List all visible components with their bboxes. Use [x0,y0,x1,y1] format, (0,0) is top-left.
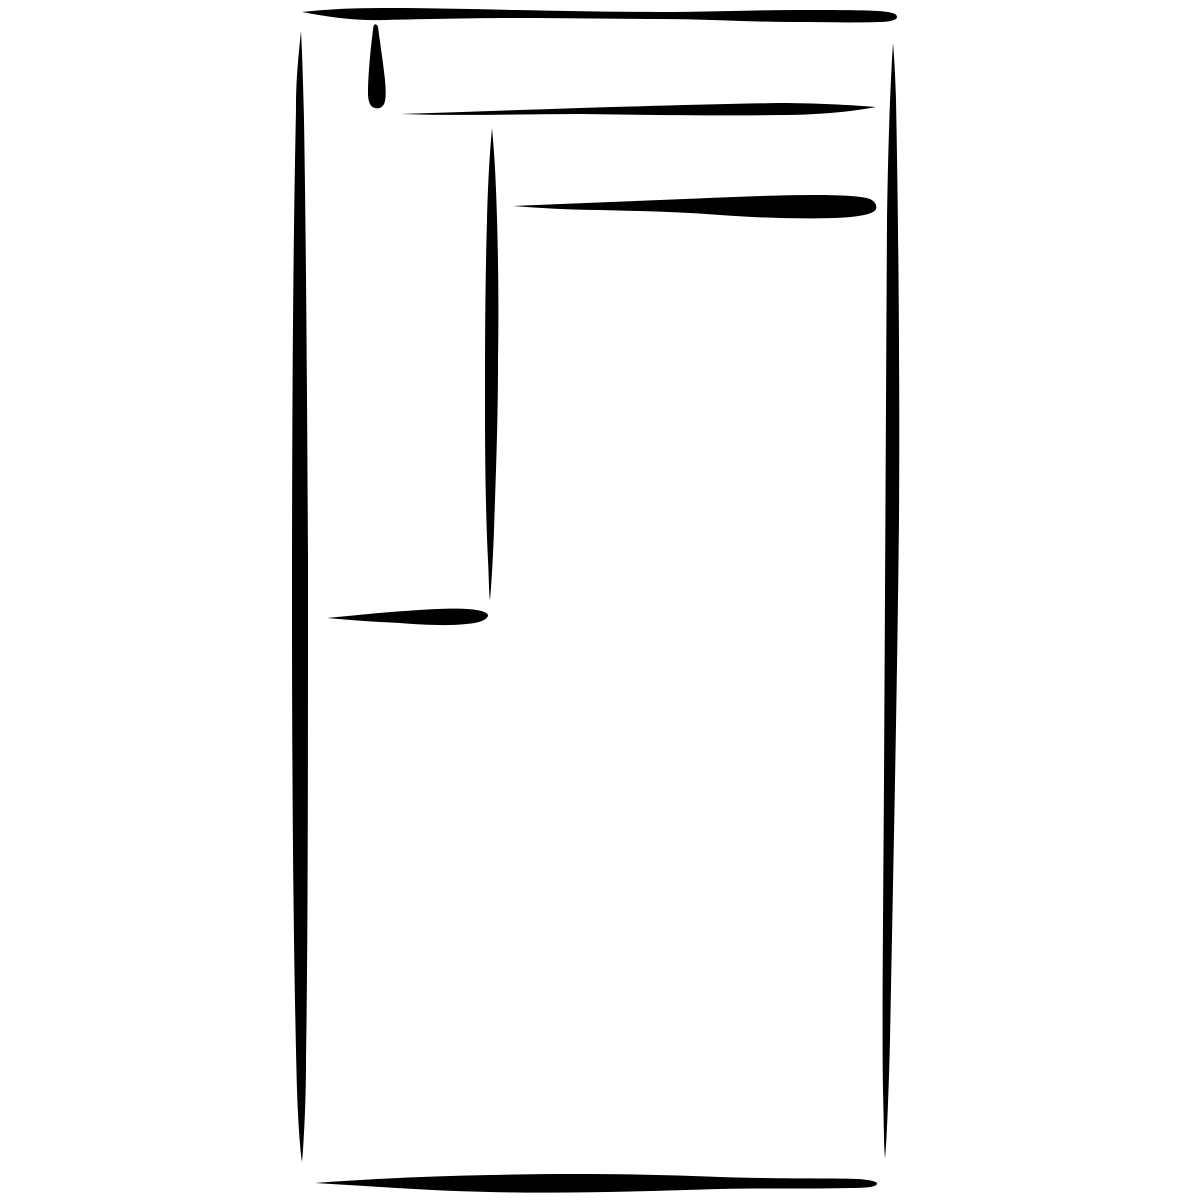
inner-tick-teardrop-stroke [368,24,386,108]
inner-lower-horizontal-stroke [513,195,876,218]
sketch-canvas [0,0,1200,1200]
outer-right-edge-stroke [883,43,900,1158]
inner-short-horizontal-stroke [327,609,488,625]
inner-upper-horizontal-stroke [400,103,876,115]
outer-top-edge-stroke [302,8,897,22]
outer-bottom-edge-stroke [315,1174,877,1193]
inner-vertical-stroke [485,128,498,600]
sketch-drawing [0,0,1200,1200]
outer-left-edge-stroke [292,31,308,1162]
